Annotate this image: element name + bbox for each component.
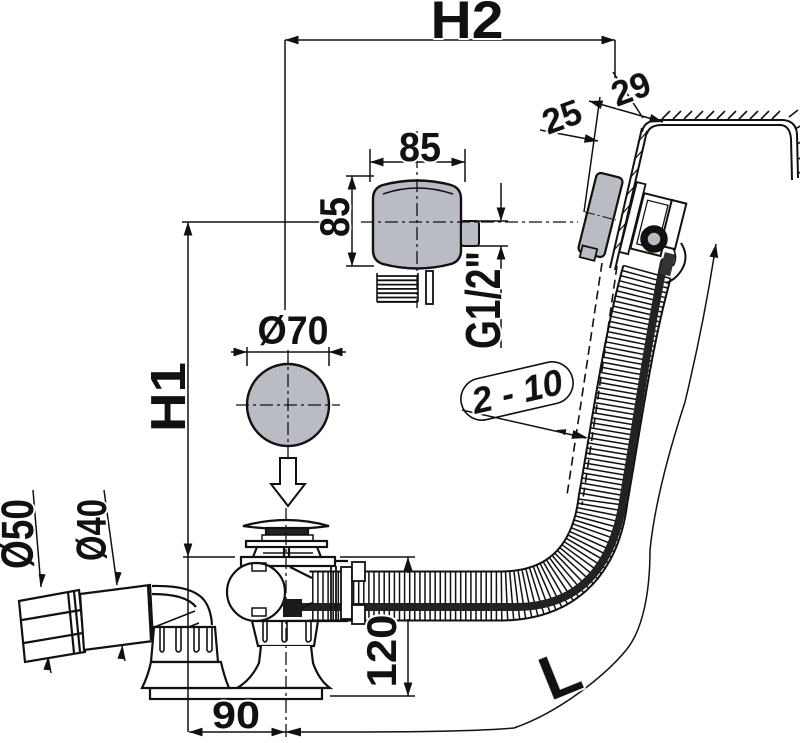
svg-text:Ø40: Ø40	[68, 499, 115, 561]
svg-text:H1: H1	[142, 362, 196, 432]
svg-text:H2: H2	[431, 0, 504, 50]
svg-text:G1/2": G1/2"	[457, 251, 511, 349]
svg-text:120: 120	[358, 615, 405, 688]
svg-text:85: 85	[311, 197, 358, 237]
svg-text:85: 85	[399, 124, 441, 170]
svg-text:Ø70: Ø70	[258, 309, 329, 353]
svg-text:90: 90	[212, 695, 260, 737]
svg-text:Ø50: Ø50	[0, 499, 43, 569]
